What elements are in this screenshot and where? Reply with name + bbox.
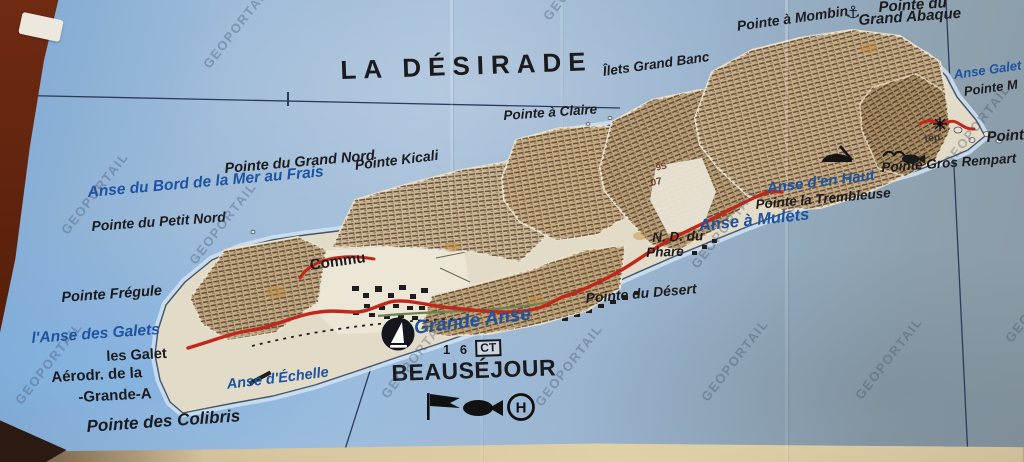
geoportail-watermark: GEOPORTAIL — [12, 319, 85, 407]
geoportail-watermark: GEOPORTAIL — [378, 313, 451, 401]
geoportail-watermark: GEOPORTAIL — [688, 183, 761, 271]
geoportail-watermark: GEOPORTAIL — [940, 81, 1013, 169]
geoportail-watermark: GEOPORTAIL — [186, 179, 259, 267]
geoportail-watermark: GEOPORTAIL — [540, 0, 613, 23]
geoportail-watermark: GEOPORTAIL — [200, 0, 273, 71]
map-photo: H⚓ LA DÉSIRADEPointe à ClaireÎlets Grand… — [0, 0, 1024, 462]
watermark-layer: GEOPORTAILGEOPORTAILGEOPORTAILGEOPORTAIL… — [0, 0, 1024, 462]
geoportail-watermark: GEOPORTAIL — [698, 316, 771, 404]
geoportail-watermark: GEOPORTAIL — [58, 149, 131, 237]
geoportail-watermark: GEOPORTAIL — [532, 321, 605, 409]
geoportail-watermark: GEOPORTAIL — [1002, 257, 1024, 345]
geoportail-watermark: GEOPORTAIL — [852, 314, 925, 402]
